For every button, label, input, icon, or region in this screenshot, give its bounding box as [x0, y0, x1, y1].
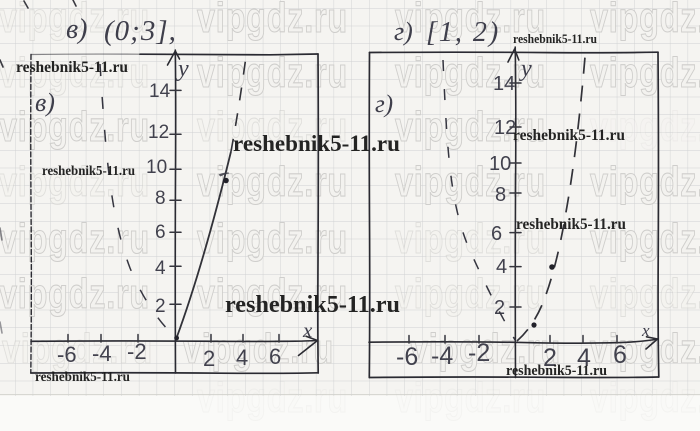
svg-text:vipgdz.ru: vipgdz.ru — [590, 158, 700, 205]
svg-text:в): в) — [35, 88, 55, 117]
svg-text:reshebnik5-11.ru: reshebnik5-11.ru — [16, 59, 128, 76]
svg-text:reshebnik5-11.ru: reshebnik5-11.ru — [35, 369, 130, 384]
svg-text:vipgdz.ru: vipgdz.ru — [0, 103, 150, 150]
svg-text:vipgdz.ru: vipgdz.ru — [395, 374, 546, 421]
svg-text:x: x — [302, 318, 313, 342]
svg-text:г): г) — [394, 17, 413, 46]
svg-text:reshebnik5-11.ru: reshebnik5-11.ru — [233, 131, 400, 156]
svg-text:reshebnik5-11.ru: reshebnik5-11.ru — [516, 216, 626, 233]
svg-text:4: 4 — [155, 258, 166, 279]
svg-text:-2: -2 — [127, 339, 147, 364]
svg-text:vipgdz.ru: vipgdz.ru — [590, 270, 700, 317]
svg-text:10: 10 — [489, 153, 511, 175]
svg-text:y: y — [176, 56, 189, 82]
svg-text:6: 6 — [491, 223, 502, 245]
svg-text:14: 14 — [493, 73, 515, 95]
svg-text:vipgdz.ru: vipgdz.ru — [590, 49, 700, 96]
svg-text:8: 8 — [495, 184, 506, 206]
svg-text:6: 6 — [269, 344, 281, 369]
svg-text:reshebnik5-11.ru: reshebnik5-11.ru — [513, 32, 597, 46]
svg-text:4: 4 — [236, 345, 248, 370]
svg-text:vipgdz.ru: vipgdz.ru — [395, 158, 546, 205]
svg-text:2: 2 — [203, 346, 215, 371]
svg-text:10: 10 — [146, 157, 167, 178]
svg-text:vipgdz.ru: vipgdz.ru — [197, 49, 348, 96]
svg-text:2: 2 — [155, 296, 166, 317]
svg-text:reshebnik5-11.ru: reshebnik5-11.ru — [42, 163, 135, 178]
svg-text:-6: -6 — [396, 343, 418, 371]
svg-text:vipgdz.ru: vipgdz.ru — [0, 215, 150, 262]
svg-text:vipgdz.ru: vipgdz.ru — [590, 374, 700, 421]
svg-text:vipgdz.ru: vipgdz.ru — [197, 374, 348, 421]
svg-text:y: y — [519, 56, 532, 82]
svg-text:(0;3],: (0;3], — [104, 15, 177, 47]
svg-text:[1, 2): [1, 2) — [426, 17, 500, 48]
svg-text:vipgdz.ru: vipgdz.ru — [197, 0, 348, 41]
svg-text:в): в) — [66, 14, 87, 45]
svg-text:14: 14 — [149, 81, 171, 102]
svg-text:-6: -6 — [57, 342, 77, 367]
svg-text:2: 2 — [494, 297, 505, 319]
svg-text:4: 4 — [496, 256, 507, 278]
svg-text:6: 6 — [155, 222, 166, 243]
svg-text:vipgdz.ru: vipgdz.ru — [590, 0, 700, 41]
svg-text:vipgdz.ru: vipgdz.ru — [197, 215, 348, 262]
svg-text:vipgdz.ru: vipgdz.ru — [395, 270, 546, 317]
svg-text:12: 12 — [148, 122, 169, 143]
svg-text:vipgdz.ru: vipgdz.ru — [0, 270, 150, 317]
svg-text:-4: -4 — [92, 341, 112, 366]
svg-text:8: 8 — [155, 188, 166, 209]
svg-text:reshebnik5-11.ru: reshebnik5-11.ru — [513, 127, 625, 144]
svg-text:г): г) — [375, 91, 393, 118]
svg-text:6: 6 — [613, 341, 627, 369]
svg-text:-2: -2 — [468, 339, 490, 367]
svg-text:x: x — [641, 321, 650, 340]
svg-text:-4: -4 — [431, 342, 453, 370]
svg-text:reshebnik5-11.ru: reshebnik5-11.ru — [225, 292, 400, 318]
svg-text:reshebnik5-11.ru: reshebnik5-11.ru — [506, 363, 607, 379]
